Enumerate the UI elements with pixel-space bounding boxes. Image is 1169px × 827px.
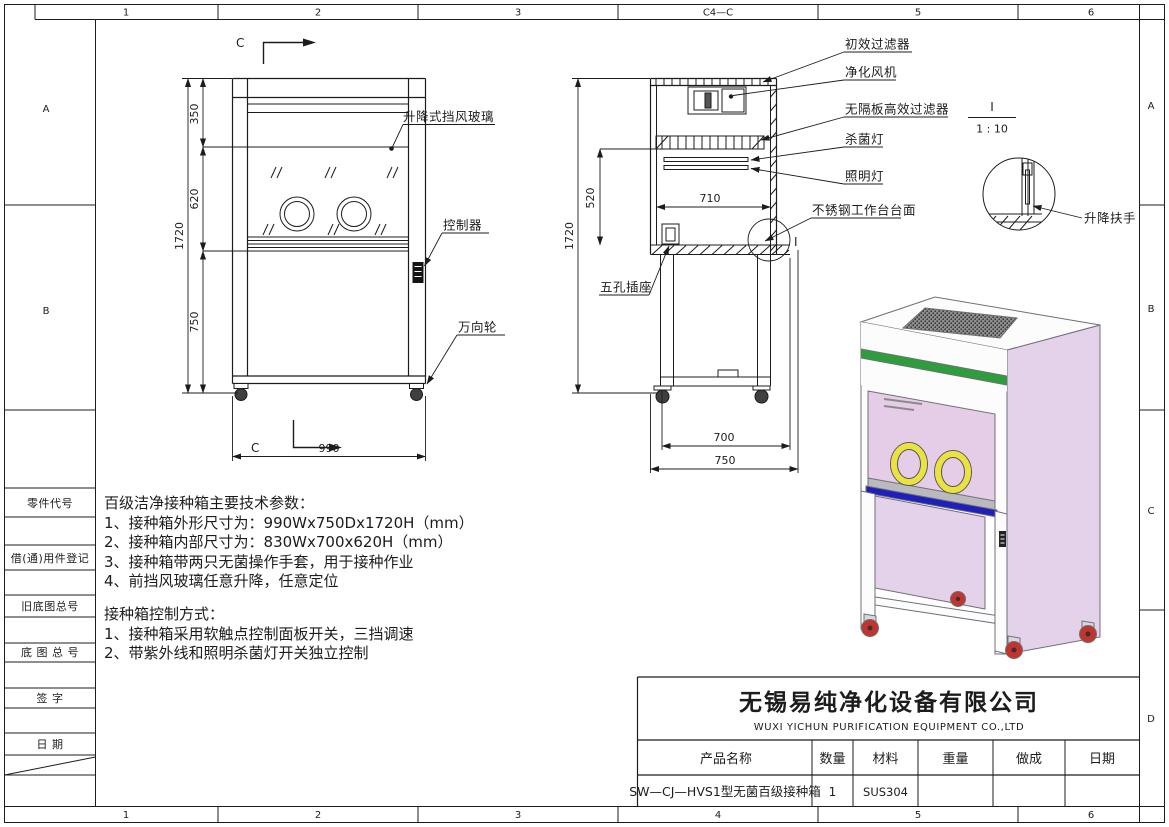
- label-fan: 净化风机: [845, 65, 897, 80]
- label-handle: 升降扶手: [1084, 211, 1136, 226]
- label-light: 照明灯: [845, 169, 884, 184]
- iso-caster: [1006, 636, 1023, 659]
- section-letter: C: [251, 441, 259, 455]
- label-socket: 五孔插座: [600, 280, 652, 295]
- dim-1720: 1720: [563, 222, 576, 250]
- casters-front: [234, 384, 424, 401]
- th-weight: 重量: [942, 751, 968, 767]
- section-letter: C: [236, 36, 244, 50]
- control-specs: 接种箱控制方式： 1、接种箱采用软触点控制面板开关，三挡调速 2、带紫外线和照明…: [104, 605, 544, 664]
- td-product-name: SW—CJ—HVS1型无菌百级接种箱: [629, 784, 821, 799]
- grid-col-label: 2: [315, 8, 321, 19]
- iso-left-leg: [861, 491, 875, 629]
- label-caster: 万向轮: [458, 320, 497, 335]
- iso-right-panel: [1007, 325, 1100, 654]
- dim-750: 750: [188, 312, 201, 333]
- sidebar-label: 零件代号: [27, 497, 73, 510]
- iso-caster: [1080, 621, 1097, 643]
- label-pre-filter: 初效过滤器: [845, 37, 910, 52]
- drawing-sheet: 1 2 3 C4—C 5 6 1 2 3 4 5 6 A B C D A B 零…: [0, 0, 1169, 827]
- td-material: SUS304: [863, 785, 908, 799]
- spec-line: 1、接种箱外形尺寸为：990Wx750Dx1720H（mm）: [104, 514, 544, 534]
- sidebar-label: 日 期: [37, 738, 64, 751]
- label-controller: 控制器: [443, 218, 482, 233]
- grid-row-label: B: [43, 306, 50, 317]
- section-callouts: [599, 52, 948, 295]
- grid-row-label: A: [43, 104, 50, 115]
- detail-drawing: [982, 156, 1042, 230]
- grid-row-label: C: [1148, 506, 1155, 517]
- grid-col-label: 5: [915, 810, 921, 821]
- detail-mark-circle: I: [794, 235, 798, 249]
- front-dimensions: [182, 79, 426, 462]
- sidebar-label: 旧底图总号: [21, 599, 79, 613]
- iso-lower-panel: [875, 496, 985, 609]
- dim-520: 520: [584, 188, 597, 209]
- dim-700: 700: [714, 431, 735, 444]
- sidebar-label: 底 图 总 号: [21, 645, 79, 659]
- detail-view: I 1 : 10 升降扶手: [968, 100, 1136, 230]
- label-worktop: 不锈钢工作台台面: [812, 203, 916, 218]
- grid-col-label: 6: [1088, 8, 1094, 19]
- grid-col-label: 3: [515, 810, 521, 821]
- spec-line: 2、接种箱内部尺寸为：830Wx700x620H（mm）: [104, 533, 544, 553]
- grid-row-label: D: [1147, 714, 1155, 725]
- spec-line: 2、带紫外线和照明杀菌灯开关独立控制: [104, 644, 544, 664]
- sidebar-label: 借(通)用件登记: [11, 551, 90, 565]
- iso-caster: [951, 592, 966, 607]
- spec-title: 百级洁净接种箱主要技术参数：: [104, 494, 544, 514]
- grid-col-label: 6: [1088, 810, 1094, 821]
- th-qty: 数量: [819, 752, 845, 767]
- company-name-cn: 无锡易纯净化设备有限公司: [640, 683, 1138, 717]
- dim-350: 350: [188, 104, 201, 125]
- grid-row-label: B: [1148, 304, 1155, 315]
- grid-col-label: C4—C: [703, 8, 733, 19]
- grid-row-label: A: [1148, 101, 1155, 112]
- casters-section: [654, 386, 770, 403]
- dim-710: 710: [700, 192, 721, 205]
- dim-750: 750: [715, 454, 736, 467]
- th-product: 产品名称: [700, 751, 752, 767]
- grid-col-label: 3: [515, 8, 521, 19]
- spec-control-title: 接种箱控制方式：: [104, 605, 544, 625]
- iso-caster: [862, 614, 879, 637]
- grid-col-label: 1: [123, 8, 129, 19]
- grid-col-label: 2: [315, 810, 321, 821]
- spec-line: 1、接种箱采用软触点控制面板开关，三挡调速: [104, 625, 544, 645]
- sidebar-label: 签 字: [37, 691, 64, 705]
- sidebar: 零件代号 借(通)用件登记 旧底图总号 底 图 总 号 签 字 日 期: [5, 488, 96, 775]
- detail-mark: I: [990, 100, 994, 114]
- label-uv-lamp: 杀菌灯: [845, 132, 884, 147]
- detail-scale: 1 : 10: [976, 123, 1008, 136]
- spec-line: 3、接种箱带两只无菌操作手套，用于接种作业: [104, 553, 544, 573]
- dim-620: 620: [188, 189, 201, 210]
- th-date: 日期: [1089, 752, 1115, 767]
- spec-line: 4、前挡风玻璃任意升降，任意定位: [104, 572, 544, 592]
- iso-view: [861, 297, 1100, 659]
- grid-col-label: 4: [715, 810, 721, 821]
- company-name-en: WUXI YICHUN PURIFICATION EQUIPMENT CO.,L…: [640, 722, 1138, 733]
- section-marker-top: C: [236, 36, 316, 64]
- grid-col-label: 5: [915, 8, 921, 19]
- front-callouts: [389, 125, 505, 385]
- th-material: 材料: [872, 752, 898, 767]
- th-made: 做成: [1016, 752, 1042, 767]
- tech-specs: 百级洁净接种箱主要技术参数： 1、接种箱外形尺寸为：990Wx750Dx1720…: [104, 494, 544, 592]
- td-qty: 1: [829, 785, 837, 799]
- grid-col-label: 1: [123, 810, 129, 821]
- dim-1720: 1720: [173, 222, 186, 250]
- label-lift-glass: 升降式挡风玻璃: [403, 109, 494, 124]
- control-panel: [413, 262, 424, 283]
- label-hepa: 无隔板高效过滤器: [845, 102, 949, 117]
- front-view: 350 620 750 1720 990 C C 升降式挡风玻璃 控制器 万向轮: [173, 36, 505, 461]
